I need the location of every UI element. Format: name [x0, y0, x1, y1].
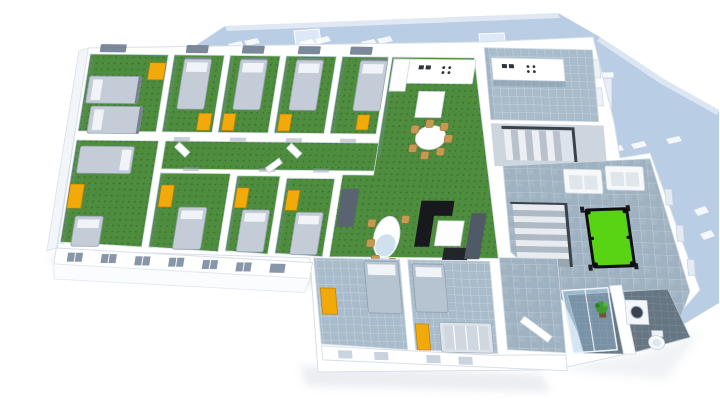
yellow-cabinet — [415, 324, 430, 350]
yellow-cabinet — [320, 288, 337, 314]
pillow — [244, 213, 266, 222]
kitchen-window — [596, 88, 604, 106]
sink-icon — [502, 64, 507, 68]
pillow — [242, 63, 265, 73]
yellow-cabinet — [147, 63, 166, 80]
yellow-cabinet — [356, 115, 370, 130]
washing-machine-icon — [625, 300, 649, 324]
window-icon — [298, 46, 321, 54]
window-icon — [100, 44, 127, 52]
pillow — [180, 210, 203, 219]
sink-icon — [509, 64, 514, 68]
sink-icon — [418, 65, 424, 69]
kitchen-counter — [491, 58, 565, 81]
pillow — [77, 219, 100, 228]
pillow — [415, 267, 442, 278]
pool-table-cloth — [588, 210, 633, 265]
sink-icon — [425, 65, 431, 69]
kitchen-window — [593, 60, 601, 78]
window-icon — [350, 47, 373, 55]
yellow-cabinet — [277, 114, 292, 131]
corridor-floor — [161, 141, 395, 171]
sofa — [605, 166, 645, 191]
staircase-north — [501, 126, 577, 163]
pillow — [298, 63, 321, 73]
bunk-bed — [439, 322, 494, 353]
sofa — [563, 169, 603, 194]
hallway-south-floor — [499, 258, 565, 353]
pillow — [297, 215, 319, 224]
pillow — [186, 62, 209, 72]
coffee-table — [434, 221, 464, 246]
floor-plan-stage — [0, 0, 720, 405]
pillow — [362, 64, 385, 74]
yellow-cabinet — [221, 113, 236, 130]
yellow-cabinet — [196, 113, 212, 130]
pillow — [367, 264, 396, 276]
island-table — [415, 91, 445, 117]
floor-plan-render — [0, 0, 720, 405]
window-icon — [186, 45, 209, 53]
window-icon — [242, 46, 265, 54]
staircase-main — [510, 202, 573, 267]
